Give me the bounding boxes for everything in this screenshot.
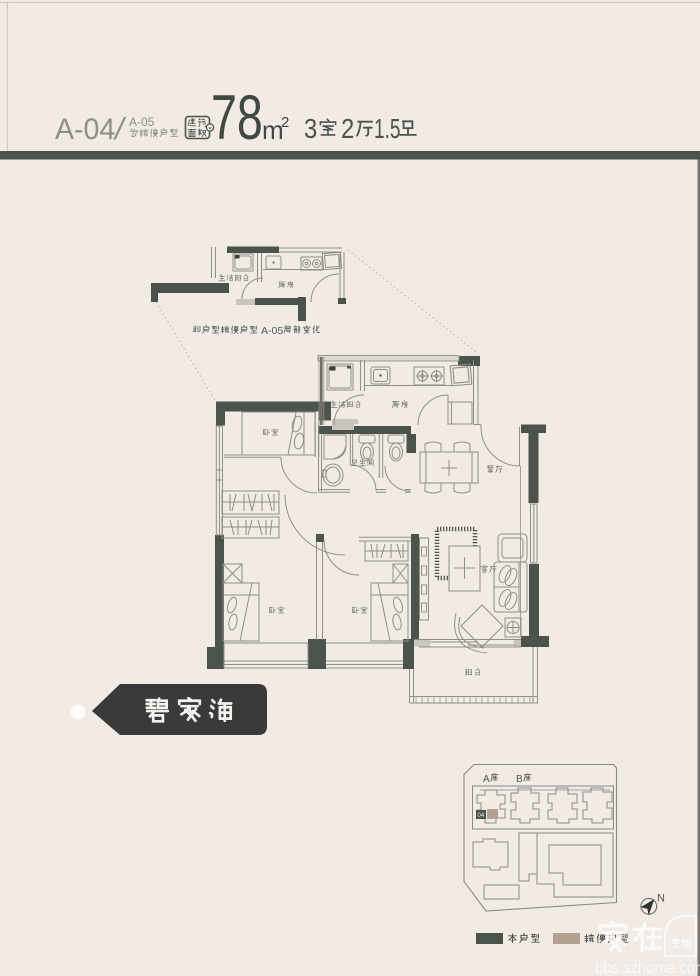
svg-text:1.5: 1.5	[374, 113, 400, 145]
svg-text:A-05: A-05	[261, 325, 283, 337]
svg-text:A-05: A-05	[129, 115, 155, 129]
svg-text:A-04: A-04	[55, 113, 115, 146]
svg-text:N: N	[657, 893, 665, 905]
svg-text:/: /	[113, 111, 127, 146]
svg-text:B: B	[516, 774, 523, 785]
svg-text:2: 2	[341, 112, 354, 144]
svg-text:A: A	[483, 774, 490, 785]
svg-text:78: 78	[211, 82, 263, 152]
svg-text:04: 04	[478, 813, 485, 819]
svg-text:3: 3	[304, 112, 317, 144]
svg-text:bbs.szhome.com: bbs.szhome.com	[595, 960, 700, 976]
svg-text:2: 2	[281, 114, 289, 131]
